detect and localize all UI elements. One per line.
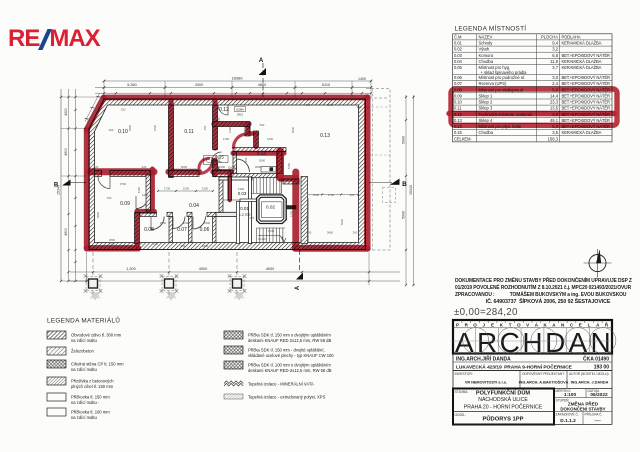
svg-text:300: 300 xyxy=(353,231,358,235)
svg-text:deskami KNAUF RED-2x12,5 mm, R: deskami KNAUF RED-2x12,5 mm, RW 58 dB xyxy=(248,368,332,373)
svg-text:ZAKÁZKOVÉ Č.: ZAKÁZKOVÉ Č. xyxy=(556,412,579,417)
svg-text:1735: 1735 xyxy=(290,210,294,217)
svg-text:A: A xyxy=(569,327,588,358)
svg-text:POLYFUNKČNÍ DŮM: POLYFUNKČNÍ DŮM xyxy=(476,389,531,397)
svg-text:14,4: 14,4 xyxy=(550,93,559,98)
svg-text:4900: 4900 xyxy=(96,211,100,218)
svg-text:1400: 1400 xyxy=(358,77,366,81)
svg-text:1500: 1500 xyxy=(313,193,320,197)
svg-text:NÁZEV: NÁZEV xyxy=(479,34,493,39)
svg-text:2500: 2500 xyxy=(160,221,167,225)
svg-text:0.11: 0.11 xyxy=(454,106,462,111)
svg-text:Rezerva (UPS): Rezerva (UPS) xyxy=(479,81,507,86)
svg-text:ODPOVĚDNÝ PROJEKTANT:: ODPOVĚDNÝ PROJEKTANT: xyxy=(522,371,565,376)
svg-text:0.05: 0.05 xyxy=(454,65,462,70)
svg-text:Příčkovka tl. 150 mm: Příčkovka tl. 150 mm xyxy=(71,395,110,400)
svg-text:300: 300 xyxy=(350,193,355,197)
svg-text:PRAHA 20 - HORNÍ POČERNICE: PRAHA 20 - HORNÍ POČERNICE xyxy=(464,404,543,411)
svg-text:KERAMICKÁ DLAŽBA: KERAMICKÁ DLAŽBA xyxy=(562,65,602,70)
svg-text:3,7: 3,7 xyxy=(552,65,558,70)
svg-text:4720: 4720 xyxy=(153,124,157,131)
svg-text:300: 300 xyxy=(357,105,362,109)
svg-text:Příčka SDK tl. 150 mm s dvojit: Příčka SDK tl. 150 mm s dvojitým opláště… xyxy=(248,333,331,338)
svg-text:150: 150 xyxy=(203,125,207,130)
svg-text:9,4: 9,4 xyxy=(552,41,558,46)
svg-text:Chodba: Chodba xyxy=(479,130,494,135)
svg-text:ING.ARCH. J.DANDA: ING.ARCH. J.DANDA xyxy=(571,381,609,385)
svg-text:BET.+EPOXIDOVÝ NÁTĚR: BET.+EPOXIDOVÝ NÁTĚR xyxy=(562,53,610,58)
svg-text:0.02: 0.02 xyxy=(454,47,462,52)
svg-text:na zdící maltu: na zdící maltu xyxy=(71,367,97,372)
svg-text:PŮDORYS 1PP: PŮDORYS 1PP xyxy=(482,415,523,423)
svg-text:3000: 3000 xyxy=(259,159,266,163)
svg-text:11,9: 11,9 xyxy=(550,59,558,64)
svg-text:5000: 5000 xyxy=(340,218,344,225)
svg-text:plných cihel tl. 150 mm: plných cihel tl. 150 mm xyxy=(71,384,114,389)
svg-text:C: C xyxy=(500,327,520,358)
svg-text:1:100: 1:100 xyxy=(564,392,577,398)
svg-text:0.15: 0.15 xyxy=(454,130,462,135)
svg-text:LEGENDA MATERIÁLŮ: LEGENDA MATERIÁLŮ xyxy=(47,316,120,325)
svg-text:1500: 1500 xyxy=(305,216,309,223)
svg-text:0.11: 0.11 xyxy=(184,129,194,135)
svg-text:1500: 1500 xyxy=(204,221,211,225)
svg-text:deskami KNAUF RED 2x12,5 mm, R: deskami KNAUF RED 2x12,5 mm, RW 58 dB xyxy=(248,338,331,343)
svg-text:2815: 2815 xyxy=(237,113,244,117)
svg-text:Příčkovka tl. 100 mm: Příčkovka tl. 100 mm xyxy=(71,410,110,415)
svg-text:49,1: 49,1 xyxy=(550,118,559,123)
svg-text:1500: 1500 xyxy=(183,187,190,191)
svg-text:1739: 1739 xyxy=(268,229,275,233)
svg-text:5000: 5000 xyxy=(181,165,188,169)
svg-text:BET.+EPOXIDOVÝ NÁTĚR: BET.+EPOXIDOVÝ NÁTĚR xyxy=(562,81,610,86)
svg-text:1250: 1250 xyxy=(202,187,209,191)
svg-text:KERAMICKÁ DLAŽBA: KERAMICKÁ DLAŽBA xyxy=(562,41,602,46)
svg-text:4320: 4320 xyxy=(64,108,68,116)
svg-text:vkládané ocelové plechy - typ: vkládané ocelové plechy - typ KNAUF CW 1… xyxy=(248,353,334,358)
svg-text:5,360: 5,360 xyxy=(127,83,137,87)
svg-text:0.09: 0.09 xyxy=(120,201,130,207)
svg-text:LEGENDA MÍSTNOSTÍ: LEGENDA MÍSTNOSTÍ xyxy=(455,24,527,33)
svg-text:5000: 5000 xyxy=(402,211,406,219)
svg-text:4320: 4320 xyxy=(128,124,132,131)
svg-text:420: 420 xyxy=(94,165,99,169)
svg-text:750: 750 xyxy=(307,231,312,235)
svg-text:Příčka SDK tl. 100 mm s dvojit: Příčka SDK tl. 100 mm s dvojitým opláště… xyxy=(248,363,331,368)
svg-text:0.06: 0.06 xyxy=(200,227,210,233)
svg-text:0.15: 0.15 xyxy=(215,155,224,160)
svg-text:Sklep 2: Sklep 2 xyxy=(479,100,494,105)
svg-text:KERAMICKÁ DLAŽBA: KERAMICKÁ DLAŽBA xyxy=(562,59,602,64)
svg-text:2300: 2300 xyxy=(152,242,159,246)
svg-text:150: 150 xyxy=(121,108,126,112)
svg-text:300: 300 xyxy=(306,103,311,107)
svg-text:ING.ARCH. A.BAKTIOŠOVÁ: ING.ARCH. A.BAKTIOŠOVÁ xyxy=(519,380,569,385)
svg-text:4850: 4850 xyxy=(258,83,266,87)
svg-text:0.04: 0.04 xyxy=(454,59,462,64)
svg-text:BET.+EPOXIDOVÝ NÁTĚR: BET.+EPOXIDOVÝ NÁTĚR xyxy=(562,100,610,105)
svg-text:ZMĚNA PŘED: ZMĚNA PŘED xyxy=(568,400,599,407)
svg-text:na zdící maltu: na zdící maltu xyxy=(71,415,97,420)
svg-text:Výtah: Výtah xyxy=(479,47,490,52)
svg-text:ING.ARCH.JIŘÍ DANDA: ING.ARCH.JIŘÍ DANDA xyxy=(456,354,511,362)
svg-text:na zdící maltu -: na zdící maltu - xyxy=(71,400,100,405)
svg-text:Č.M: Č.M xyxy=(454,34,462,39)
svg-text:Příčka SDK tl. 150 mm - dvojit: Příčka SDK tl. 150 mm - dvojité opláštěn… xyxy=(248,348,325,353)
svg-text:420: 420 xyxy=(142,165,147,169)
svg-text:Přizdívka z betonových: Přizdívka z betonových xyxy=(71,379,114,384)
svg-text:1,300: 1,300 xyxy=(126,267,136,271)
svg-text:D: D xyxy=(545,327,565,358)
svg-text:----: ---- xyxy=(594,419,601,424)
svg-text:3,2: 3,2 xyxy=(552,47,558,52)
svg-text:PODLAHA: PODLAHA xyxy=(562,34,581,39)
svg-text:0.04: 0.04 xyxy=(189,203,199,209)
svg-text:PLOCHA: PLOCHA xyxy=(541,34,558,39)
svg-text:BET.+EPOXIDOVÝ NÁTĚR: BET.+EPOXIDOVÝ NÁTĚR xyxy=(562,118,610,123)
svg-text:Cihelná stěna CP tl. 150 mm: Cihelná stěna CP tl. 150 mm xyxy=(71,362,124,367)
svg-text:BET.+EPOXIDOVÝ NÁTĚR: BET.+EPOXIDOVÝ NÁTĚR xyxy=(562,75,610,80)
svg-text:150: 150 xyxy=(244,157,248,162)
svg-text:Sklep 3: Sklep 3 xyxy=(479,106,494,111)
svg-text:0.01: 0.01 xyxy=(240,206,249,211)
svg-text:0.03: 0.03 xyxy=(238,191,247,196)
svg-text:0.07: 0.07 xyxy=(177,227,187,233)
svg-text:ČKA 01490: ČKA 01490 xyxy=(583,355,609,362)
svg-text:3700: 3700 xyxy=(120,182,127,186)
svg-text:400: 400 xyxy=(109,128,114,132)
svg-text:4900: 4900 xyxy=(64,148,68,156)
svg-text:1100: 1100 xyxy=(228,127,232,133)
svg-text:3,5: 3,5 xyxy=(552,130,558,135)
svg-text:1750: 1750 xyxy=(328,193,335,197)
svg-text:BET.+EPOXIDOVÝ NÁTĚR: BET.+EPOXIDOVÝ NÁTĚR xyxy=(562,93,610,98)
svg-text:AUTOR (NOSITEL ÚKOLU):: AUTOR (NOSITEL ÚKOLU): xyxy=(569,371,609,376)
svg-text:1135: 1135 xyxy=(248,216,254,220)
svg-text:B: B xyxy=(402,181,407,188)
svg-text:Schody: Schody xyxy=(479,41,494,46)
svg-text:0.12: 0.12 xyxy=(219,107,229,113)
svg-text:5000: 5000 xyxy=(291,126,295,133)
svg-text:Obvodové zdivo tl. 300 mm: Obvodové zdivo tl. 300 mm xyxy=(71,333,122,338)
svg-text:na zdící maltu: na zdící maltu xyxy=(71,338,97,343)
svg-text:193 00: 193 00 xyxy=(594,365,610,371)
svg-text:0.13: 0.13 xyxy=(320,133,330,139)
svg-text:4900: 4900 xyxy=(64,228,68,236)
svg-text:1520: 1520 xyxy=(202,244,209,248)
svg-text:SUMA: SUMA xyxy=(236,107,244,111)
svg-text:2,4: 2,4 xyxy=(552,81,558,86)
svg-text:A: A xyxy=(295,285,301,290)
svg-text:0.02: 0.02 xyxy=(266,205,275,210)
svg-text:15340: 15340 xyxy=(409,185,413,195)
svg-text:13,5: 13,5 xyxy=(550,106,559,111)
svg-text:920: 920 xyxy=(217,117,221,122)
svg-text:ODDÍL:: ODDÍL: xyxy=(455,413,466,417)
svg-text:KERAMICKÁ DLAŽBA: KERAMICKÁ DLAŽBA xyxy=(562,130,602,135)
svg-text:Železobeton: Železobeton xyxy=(71,349,94,354)
svg-text:0.10: 0.10 xyxy=(118,129,128,135)
svg-text:VR NEMOVITOSTI s.r.o.: VR NEMOVITOSTI s.r.o. xyxy=(465,381,507,385)
svg-text:0.14: 0.14 xyxy=(257,151,266,156)
svg-text:0.01: 0.01 xyxy=(454,41,462,46)
svg-text:23,3: 23,3 xyxy=(550,100,559,105)
svg-text:0.06: 0.06 xyxy=(454,75,462,80)
svg-text:Chodba: Chodba xyxy=(479,59,494,64)
svg-text:NÁCHODSKÁ ULICE: NÁCHODSKÁ ULICE xyxy=(478,396,528,403)
svg-text:D.1.1.2: D.1.1.2 xyxy=(560,418,576,424)
svg-text:3000: 3000 xyxy=(255,165,262,169)
svg-text:4500: 4500 xyxy=(199,267,207,271)
svg-text:0.08: 0.08 xyxy=(144,227,154,233)
svg-text:06/2022: 06/2022 xyxy=(590,392,608,398)
svg-text:500: 500 xyxy=(260,123,265,127)
svg-text:2500: 2500 xyxy=(109,242,116,246)
svg-text:700: 700 xyxy=(107,196,112,200)
svg-text:1735: 1735 xyxy=(164,187,171,191)
svg-text:CELKEM: CELKEM xyxy=(454,136,471,141)
svg-text:LUKAVECKÁ 423/19: LUKAVECKÁ 423/19 xyxy=(456,364,502,371)
svg-text:BET.+EPOXIDOVÝ NÁTĚR: BET.+EPOXIDOVÝ NÁTĚR xyxy=(562,106,610,111)
svg-text:158,3: 158,3 xyxy=(548,136,559,141)
svg-text:1400: 1400 xyxy=(142,193,149,197)
svg-text:Sklep 1: Sklep 1 xyxy=(479,93,494,98)
svg-text:0.13: 0.13 xyxy=(454,118,462,123)
svg-text:1100: 1100 xyxy=(223,137,229,141)
svg-text:Sklep 4: Sklep 4 xyxy=(479,118,494,123)
svg-text:5110: 5110 xyxy=(322,83,330,87)
svg-text:3,0: 3,0 xyxy=(552,75,558,80)
svg-text:PRAHA 9-HORNÍ POČERNICE: PRAHA 9-HORNÍ POČERNICE xyxy=(504,363,573,371)
svg-text:DOKONČENÍ STAVBY: DOKONČENÍ STAVBY xyxy=(560,407,605,412)
svg-text:1200: 1200 xyxy=(287,162,291,169)
svg-text:1300: 1300 xyxy=(238,187,245,191)
svg-text:1200: 1200 xyxy=(183,221,190,225)
svg-text:A: A xyxy=(455,327,474,358)
svg-text:0.07: 0.07 xyxy=(454,81,462,86)
svg-text:4300: 4300 xyxy=(195,83,203,87)
svg-text:Tepelná izolace - extrudovaný: Tepelná izolace - extrudovaný polyst. XP… xyxy=(248,395,326,400)
svg-text:4630: 4630 xyxy=(266,267,274,271)
svg-text:Tepelná izolace - MINERÁLNÍ V: Tepelná izolace - MINERÁLNÍ VATA xyxy=(248,382,314,387)
svg-text:0.09: 0.09 xyxy=(454,93,462,98)
svg-text:1×130: 1×130 xyxy=(258,237,266,241)
svg-text:4300: 4300 xyxy=(219,165,226,169)
svg-text:1400: 1400 xyxy=(137,186,141,193)
svg-text:0.10: 0.10 xyxy=(454,100,462,105)
svg-text:Místnost pro podružné el.: Místnost pro podružné el. xyxy=(479,75,526,80)
svg-text:750: 750 xyxy=(181,244,186,248)
svg-text:5000: 5000 xyxy=(402,136,406,144)
svg-text:B: B xyxy=(54,183,59,189)
svg-text:18980: 18980 xyxy=(231,76,243,81)
svg-text:0.05: 0.05 xyxy=(229,166,236,170)
svg-text:STAVBA:: STAVBA: xyxy=(455,390,469,394)
svg-text:A: A xyxy=(259,58,264,64)
svg-text:6945: 6945 xyxy=(327,103,334,107)
svg-text:INVESTOR:: INVESTOR: xyxy=(455,372,473,376)
svg-text:PŘÍLOHA Č.: PŘÍLOHA Č. xyxy=(585,412,603,417)
svg-text:Komora: Komora xyxy=(479,53,494,58)
svg-text:H: H xyxy=(522,327,542,358)
svg-text:3660: 3660 xyxy=(327,231,334,235)
svg-text:2500: 2500 xyxy=(109,238,116,242)
svg-text:R: R xyxy=(477,327,497,358)
svg-text:0.03: 0.03 xyxy=(454,53,462,58)
svg-text:1735: 1735 xyxy=(293,187,300,191)
svg-text:6,8: 6,8 xyxy=(552,53,558,58)
svg-text:1200: 1200 xyxy=(267,137,274,141)
